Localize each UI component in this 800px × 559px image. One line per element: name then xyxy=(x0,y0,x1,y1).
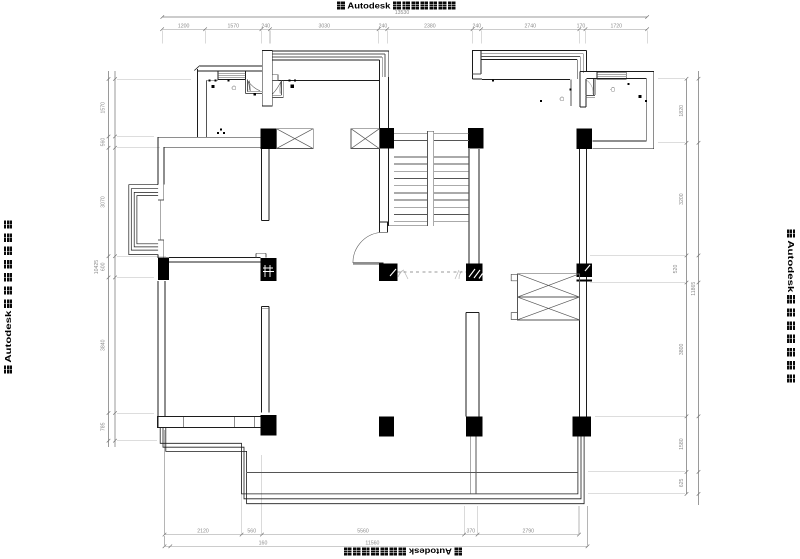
svg-text:560: 560 xyxy=(100,138,106,147)
svg-text:1570: 1570 xyxy=(227,24,239,30)
svg-text:Autodesk: Autodesk xyxy=(786,240,795,293)
svg-text:1570: 1570 xyxy=(100,102,106,114)
svg-text:600: 600 xyxy=(100,262,106,271)
svg-text:2740: 2740 xyxy=(524,24,536,30)
svg-text:170: 170 xyxy=(577,24,586,30)
svg-text:13530: 13530 xyxy=(395,10,410,16)
svg-text:370: 370 xyxy=(466,529,475,535)
svg-text:1200: 1200 xyxy=(178,24,190,30)
svg-text:2790: 2790 xyxy=(522,529,534,535)
svg-text:2120: 2120 xyxy=(197,529,209,535)
svg-text:Autodesk: Autodesk xyxy=(347,2,391,11)
svg-text:3200: 3200 xyxy=(679,193,685,205)
svg-text:520: 520 xyxy=(673,265,679,274)
svg-text:Autodesk: Autodesk xyxy=(408,546,452,555)
svg-text:3030: 3030 xyxy=(319,24,331,30)
svg-text:11560: 11560 xyxy=(365,540,379,546)
svg-text:240: 240 xyxy=(379,24,388,30)
svg-text:1820: 1820 xyxy=(679,105,685,117)
svg-text:785: 785 xyxy=(100,422,106,431)
svg-text:240: 240 xyxy=(472,24,481,30)
svg-text:11865: 11865 xyxy=(691,282,697,296)
svg-text:3800: 3800 xyxy=(679,344,685,356)
svg-text:2380: 2380 xyxy=(424,24,436,30)
svg-text:160: 160 xyxy=(259,540,268,546)
svg-text:5560: 5560 xyxy=(357,529,369,535)
svg-text:1720: 1720 xyxy=(610,24,622,30)
svg-text:3840: 3840 xyxy=(100,339,106,351)
svg-text:560: 560 xyxy=(247,529,256,535)
svg-text:625: 625 xyxy=(679,478,685,487)
svg-text:10425: 10425 xyxy=(94,260,100,275)
svg-text:1580: 1580 xyxy=(679,438,685,450)
svg-text:Autodesk: Autodesk xyxy=(4,310,13,363)
svg-text:3070: 3070 xyxy=(100,196,106,208)
svg-text:240: 240 xyxy=(261,24,270,30)
